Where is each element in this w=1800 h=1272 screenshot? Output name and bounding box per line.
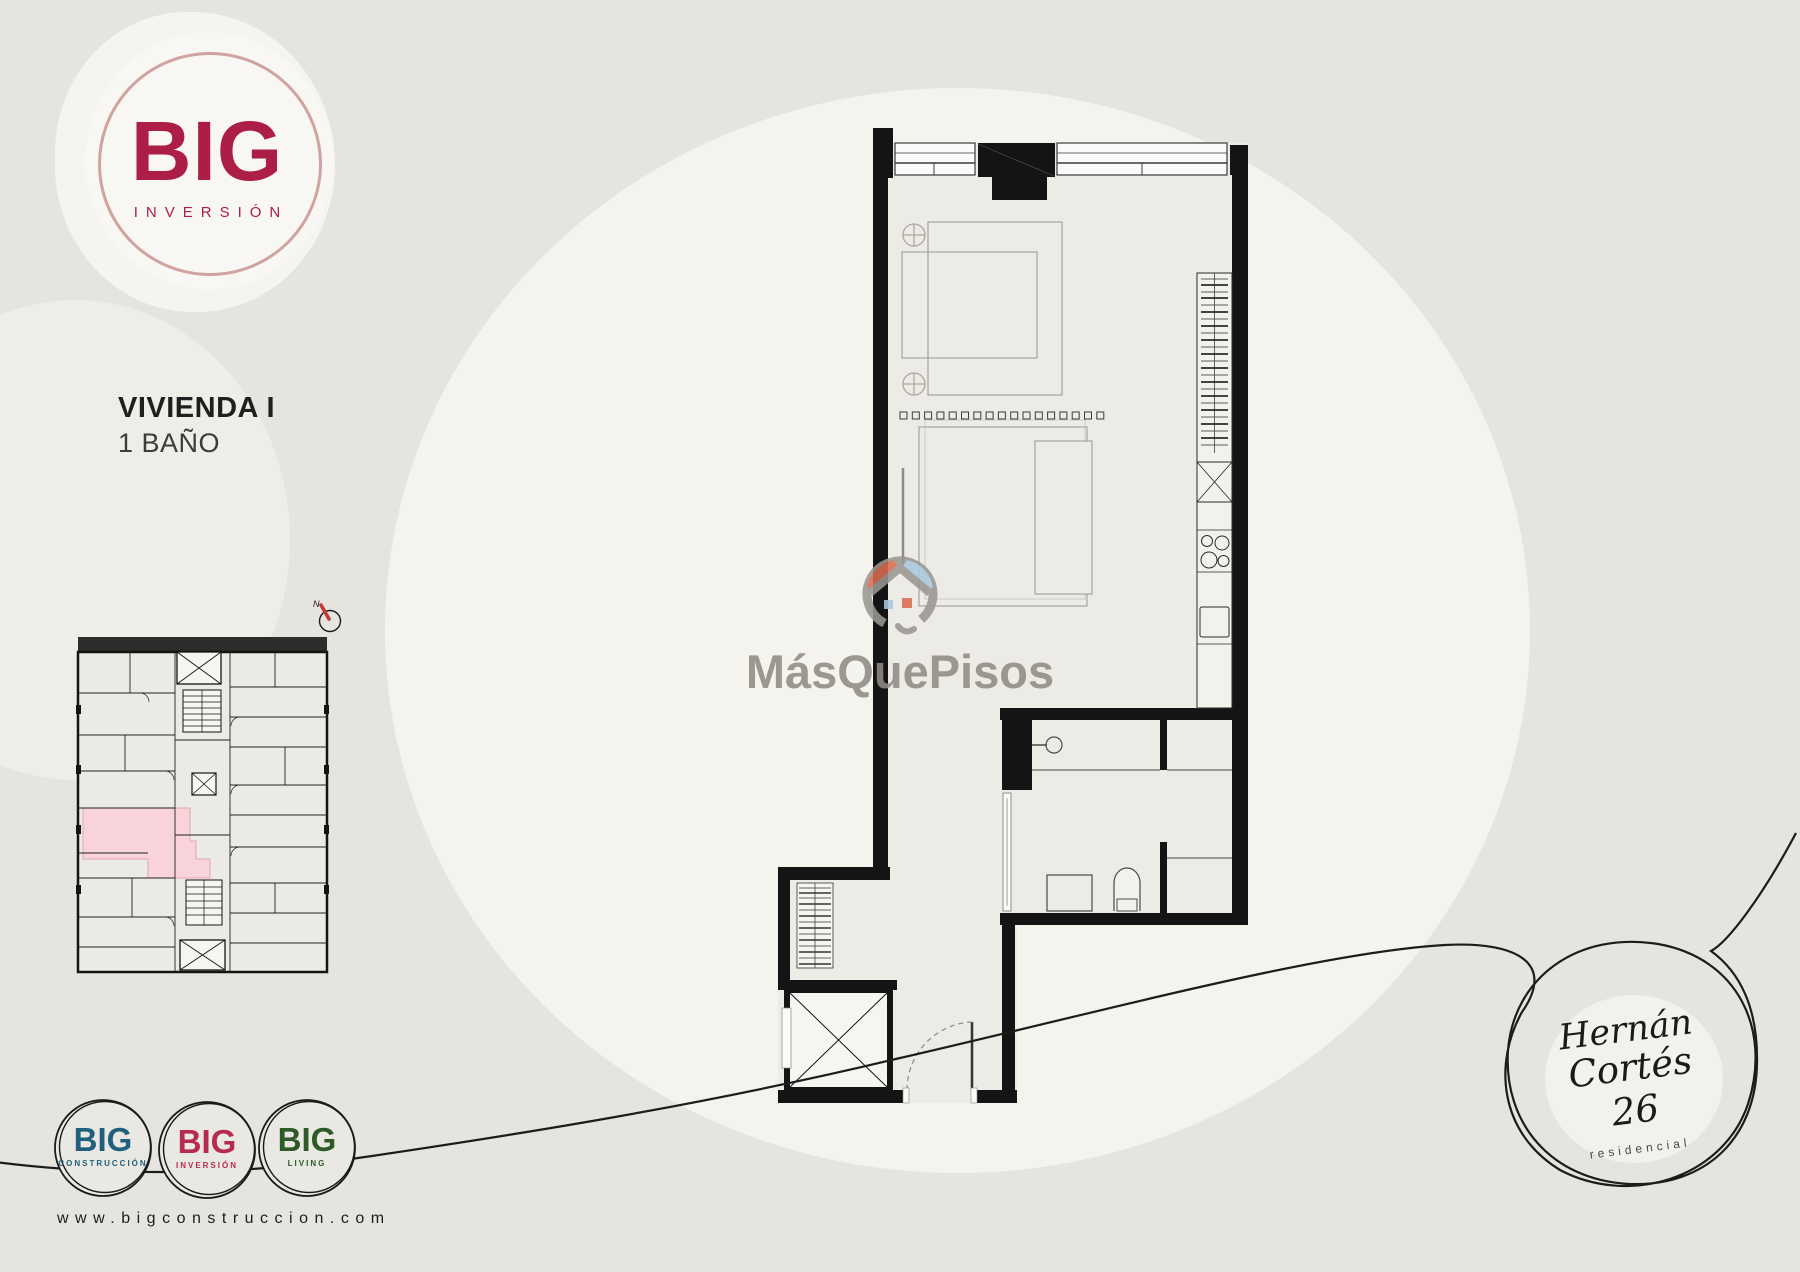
logo-sub: LIVING [259,1159,355,1168]
kitchen [1197,273,1232,708]
floorplan-sheet: BIG INVERSIÓN VIVIENDA I 1 BAÑO N [0,0,1800,1272]
watermark-text: MásQuePisos [660,644,1140,699]
big-inversion-footer-logo: BIG INVERSIÓN [159,1125,255,1170]
big-inversion-logo-text: BIG INVERSIÓN [98,112,316,221]
masquepisos-watermark: MásQuePisos [660,545,1140,699]
elevator-shaft [782,990,890,1090]
masquepisos-house-icon [854,545,946,637]
service-shaft [797,883,833,968]
hernan-cortes-logo: Hernán Cortés 26 residencial [1534,1000,1730,1167]
unit-title-block: VIVIENDA I 1 BAÑO [118,392,275,459]
unit-subtitle: 1 BAÑO [118,428,275,459]
big-living-logo: BIG LIVING [259,1123,355,1168]
logo-name: BIG [55,1123,151,1156]
logo-sub: CONSTRUCCIÓN [55,1159,151,1168]
elevator-door [782,1008,791,1068]
brand-name: BIG [98,112,316,192]
building-overview-plan: N [70,595,335,980]
brand-subtitle: INVERSIÓN [98,204,316,221]
unit-title: VIVIENDA I [118,392,275,425]
window-band [895,143,1227,175]
website-url: www.bigconstruccion.com [57,1210,391,1228]
logo-sub: INVERSIÓN [159,1161,255,1170]
north-label: N [313,599,320,609]
logo-name: BIG [159,1125,255,1158]
overview-facade-band [78,637,327,652]
logo-name: BIG [259,1123,355,1156]
north-compass-icon: N [313,599,341,632]
big-construccion-logo: BIG CONSTRUCCIÓN [55,1123,151,1168]
